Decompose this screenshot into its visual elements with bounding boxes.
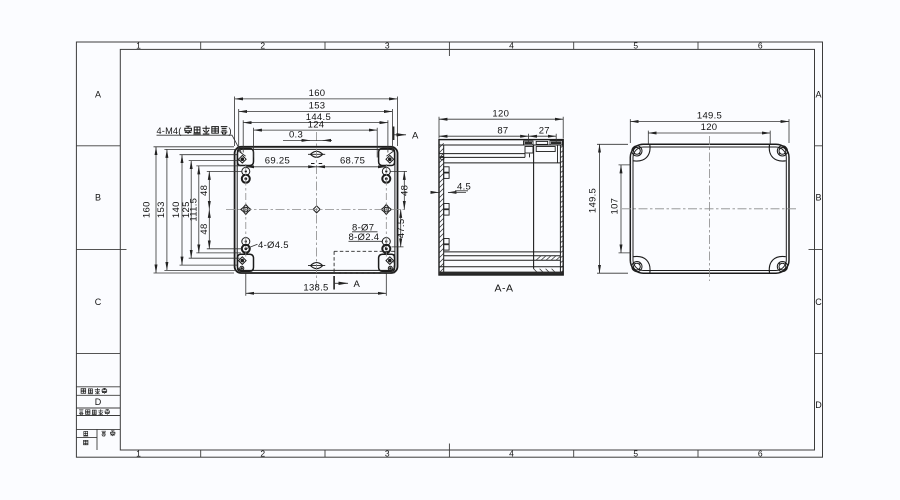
svg-text:5: 5 [633,448,638,458]
svg-text:138.5: 138.5 [303,282,328,293]
svg-text:68.75: 68.75 [340,156,365,167]
svg-text:149.5: 149.5 [697,111,722,122]
svg-text:120: 120 [492,108,509,119]
svg-text:153: 153 [309,101,326,112]
svg-text:B: B [815,193,821,203]
svg-text:1: 1 [136,41,141,51]
svg-text:47.5: 47.5 [396,219,407,239]
svg-text:87: 87 [497,125,508,136]
svg-text:5: 5 [633,41,638,51]
svg-text:107: 107 [610,198,621,215]
svg-text:160: 160 [309,88,326,99]
svg-text:4-M4(: 4-M4( [157,126,182,136]
svg-text:0.3: 0.3 [289,130,303,141]
svg-text:48: 48 [199,185,210,196]
svg-text:48: 48 [199,223,210,234]
svg-text:4-Ø4.5: 4-Ø4.5 [258,240,289,251]
svg-text:B: B [95,193,101,203]
svg-text:153: 153 [156,201,167,218]
svg-text:4: 4 [509,41,514,51]
svg-text:3: 3 [385,448,390,458]
svg-text:C: C [95,297,102,307]
svg-text:6: 6 [758,41,763,51]
svg-text:111.5: 111.5 [189,198,200,222]
svg-text:C: C [815,297,822,307]
svg-text:69.25: 69.25 [265,156,290,167]
svg-text:6: 6 [758,448,763,458]
svg-text:2: 2 [260,41,265,51]
svg-text:A: A [412,131,419,142]
svg-text:A-A: A-A [494,283,513,295]
svg-text:120: 120 [701,122,718,133]
svg-text:4: 4 [509,448,514,458]
svg-text:4.5: 4.5 [457,181,471,192]
svg-text:D: D [815,400,822,410]
svg-text:A: A [815,90,821,100]
svg-text:A: A [95,90,101,100]
svg-text:3: 3 [385,41,390,51]
svg-text:48: 48 [399,185,410,196]
svg-text:160: 160 [142,201,153,218]
svg-text:1: 1 [136,448,141,458]
svg-text:2: 2 [260,448,265,458]
svg-text:D: D [95,397,102,407]
svg-text:27: 27 [539,125,550,136]
svg-text:124: 124 [308,119,325,130]
svg-text:): ) [229,126,232,136]
svg-text:149.5: 149.5 [588,188,599,213]
svg-text:A: A [354,279,361,290]
